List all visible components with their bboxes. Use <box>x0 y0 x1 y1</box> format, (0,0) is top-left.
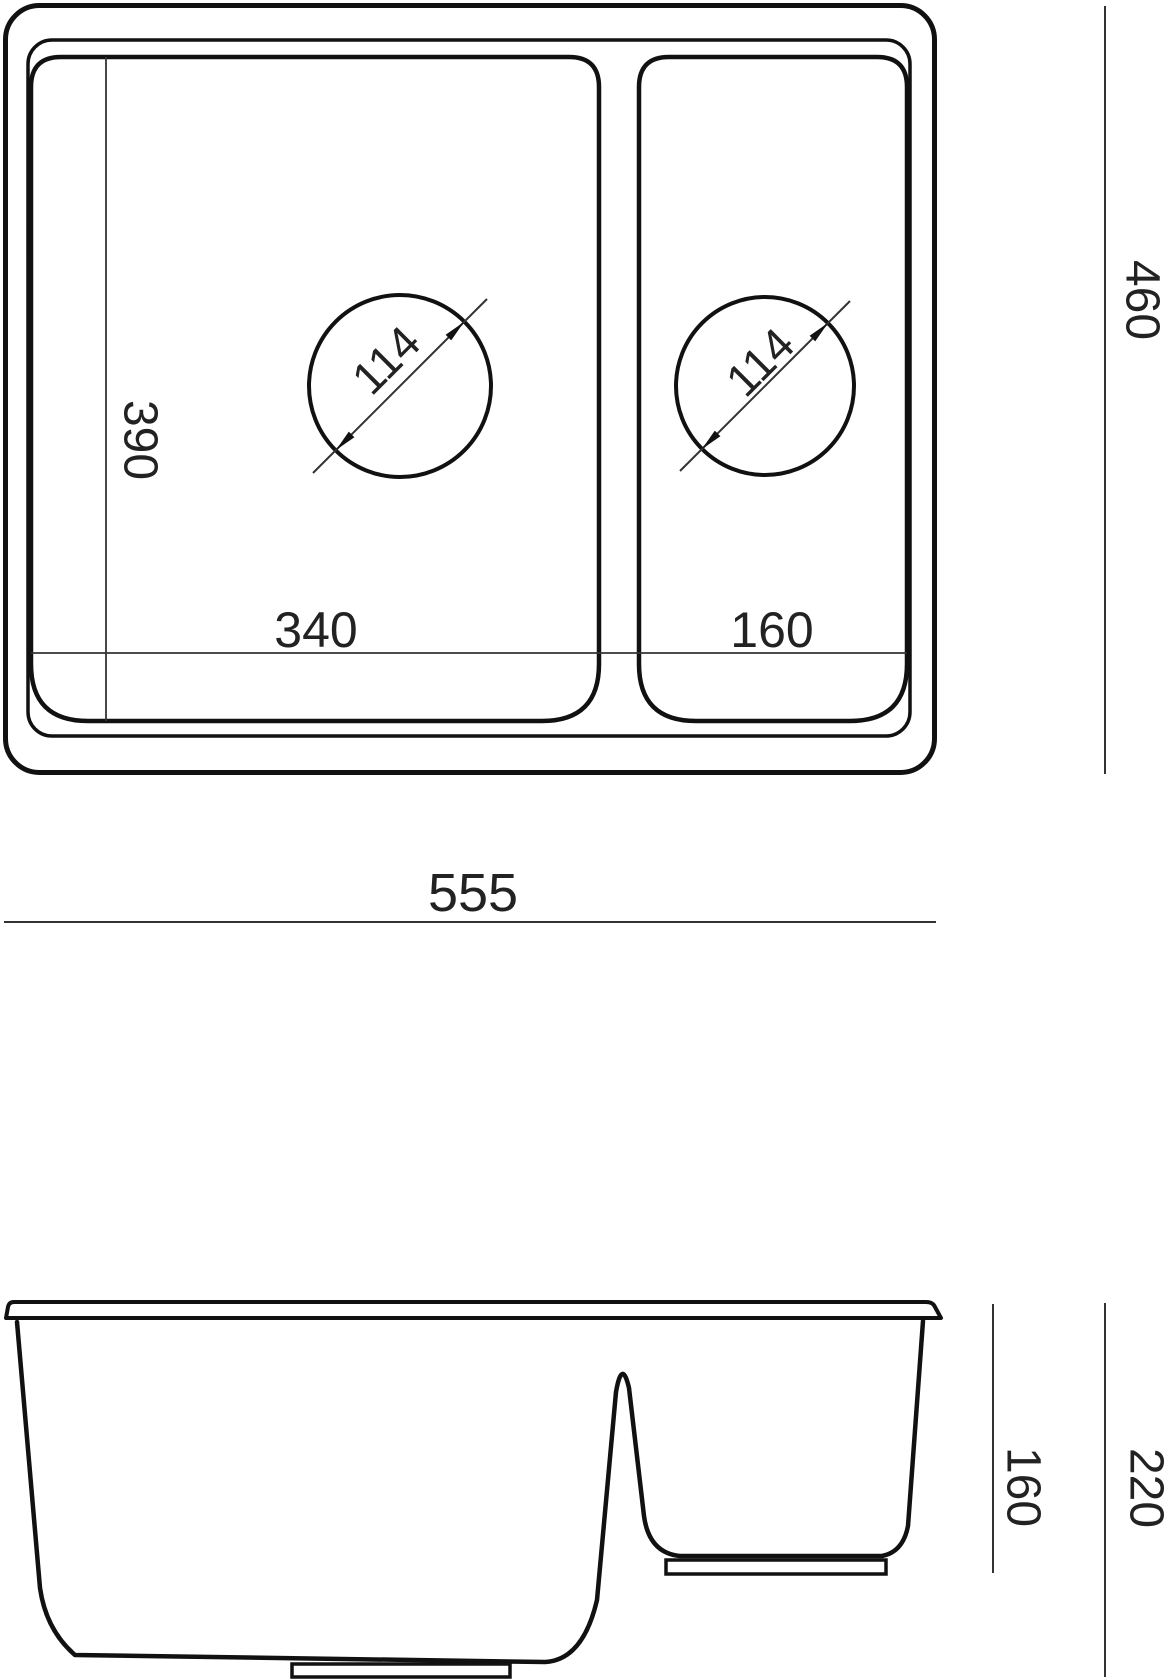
overall-width-dimension: 555 <box>4 863 936 923</box>
small-bowl-depth-label: 160 <box>997 1447 1050 1527</box>
overall-depth-label: 460 <box>1116 260 1166 340</box>
small-bowl-width-label: 160 <box>730 602 813 658</box>
main-bowl-width-label: 340 <box>274 602 357 658</box>
main-bowl-depth-label: 390 <box>114 400 167 480</box>
sink-technical-drawing: 114 114 390 340 160 460 555 160 220 <box>0 0 1166 1680</box>
main-bowl-foot <box>292 1664 510 1677</box>
overall-width-label: 555 <box>428 863 518 923</box>
small-drain-diameter-label: 114 <box>716 318 805 407</box>
small-bowl-foot <box>666 1560 886 1574</box>
top-view: 114 114 390 340 160 460 <box>6 6 1166 775</box>
main-drain-diameter-label: 114 <box>342 316 431 405</box>
side-view: 160 220 <box>6 1302 1166 1677</box>
deck-profile <box>6 1302 941 1318</box>
body-profile <box>17 1321 923 1662</box>
overall-height-label: 220 <box>1120 1448 1166 1528</box>
sink-technical-drawing-page: 114 114 390 340 160 460 555 160 220 <box>0 0 1166 1680</box>
